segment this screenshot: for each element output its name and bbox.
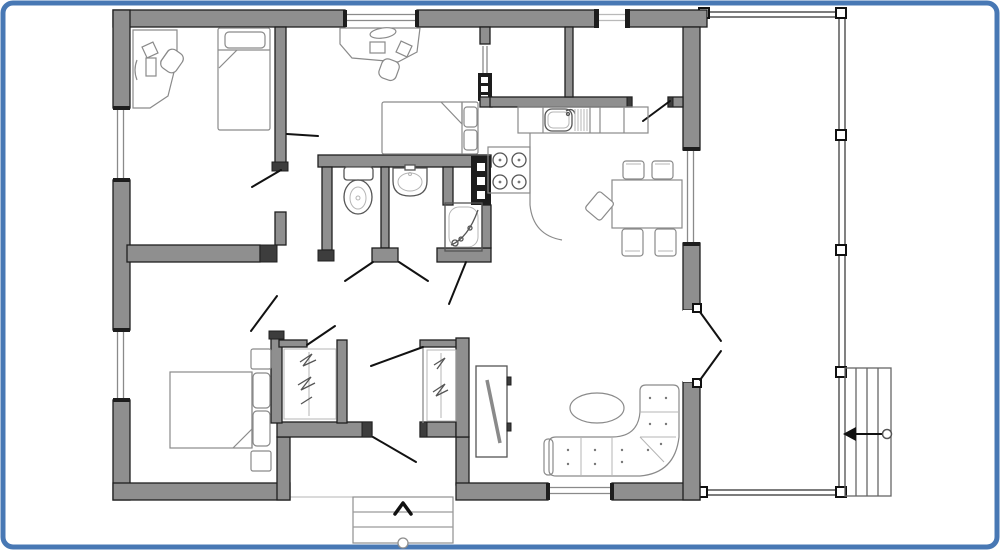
oval-coffee-table	[570, 393, 624, 423]
terrace-posts	[697, 8, 846, 497]
kitchen-sink-icon	[545, 109, 575, 131]
door-shower-room	[449, 262, 466, 304]
closet-1-interior	[284, 349, 336, 419]
single-bed	[218, 28, 270, 130]
floorplan-page	[0, 0, 1000, 550]
double-bed	[170, 372, 270, 448]
clothes-rail-icon	[298, 354, 316, 404]
drainer-icon	[575, 109, 587, 131]
nightstand	[251, 451, 271, 471]
interior-walls	[127, 27, 683, 437]
pillow	[464, 130, 477, 150]
window-top	[343, 10, 419, 27]
window-right	[683, 147, 700, 246]
single-bed	[382, 102, 478, 154]
floorplan-svg	[0, 0, 1000, 550]
door-wc	[345, 262, 373, 281]
bedroom-top-left-furniture	[133, 28, 270, 130]
tv-icon	[487, 380, 500, 443]
door-closet-2	[371, 347, 423, 366]
tv-cabinet	[476, 366, 511, 457]
living-room-furniture	[476, 366, 679, 476]
terrace-stairs	[843, 368, 892, 496]
sofa-buttons	[567, 397, 667, 465]
front-door-leaf	[373, 437, 416, 462]
counter-edge	[530, 133, 562, 240]
pillow	[253, 411, 270, 446]
bedroom-middle-furniture	[340, 26, 478, 154]
kitchen-counter	[518, 107, 648, 133]
toilet-icon	[344, 167, 373, 214]
nightstand	[251, 349, 271, 369]
stove-icon	[488, 147, 530, 193]
french-doors-terrace	[683, 304, 721, 387]
desk-pad	[146, 58, 156, 76]
master-bedroom-furniture	[170, 349, 271, 471]
wash-basin-icon	[393, 165, 427, 196]
dining-furniture	[585, 161, 682, 256]
door-washroom	[399, 262, 428, 281]
dining-table	[612, 180, 682, 228]
door-back-entry	[643, 101, 670, 121]
bathroom-fixtures	[344, 165, 482, 251]
terrace	[697, 8, 892, 497]
corner-shower-icon	[445, 203, 482, 251]
corner-sofa	[544, 385, 679, 476]
keyboard-icon	[370, 42, 385, 53]
chair	[585, 191, 615, 221]
door-bedroom-top-left	[252, 170, 281, 187]
window-left-upper	[113, 106, 130, 182]
door-master-bedroom	[251, 296, 277, 331]
pillow	[464, 107, 477, 127]
chair	[655, 229, 676, 256]
door-closet-1	[307, 326, 335, 345]
pillow	[253, 373, 270, 408]
back-door-opening	[594, 9, 630, 28]
window-left-lower	[113, 328, 130, 402]
chair	[622, 229, 643, 256]
front-porch	[290, 497, 453, 548]
window-bottom	[546, 483, 614, 500]
door-bedroom-middle	[287, 134, 318, 136]
pillow	[225, 32, 265, 48]
closet-2-interior	[427, 350, 456, 421]
